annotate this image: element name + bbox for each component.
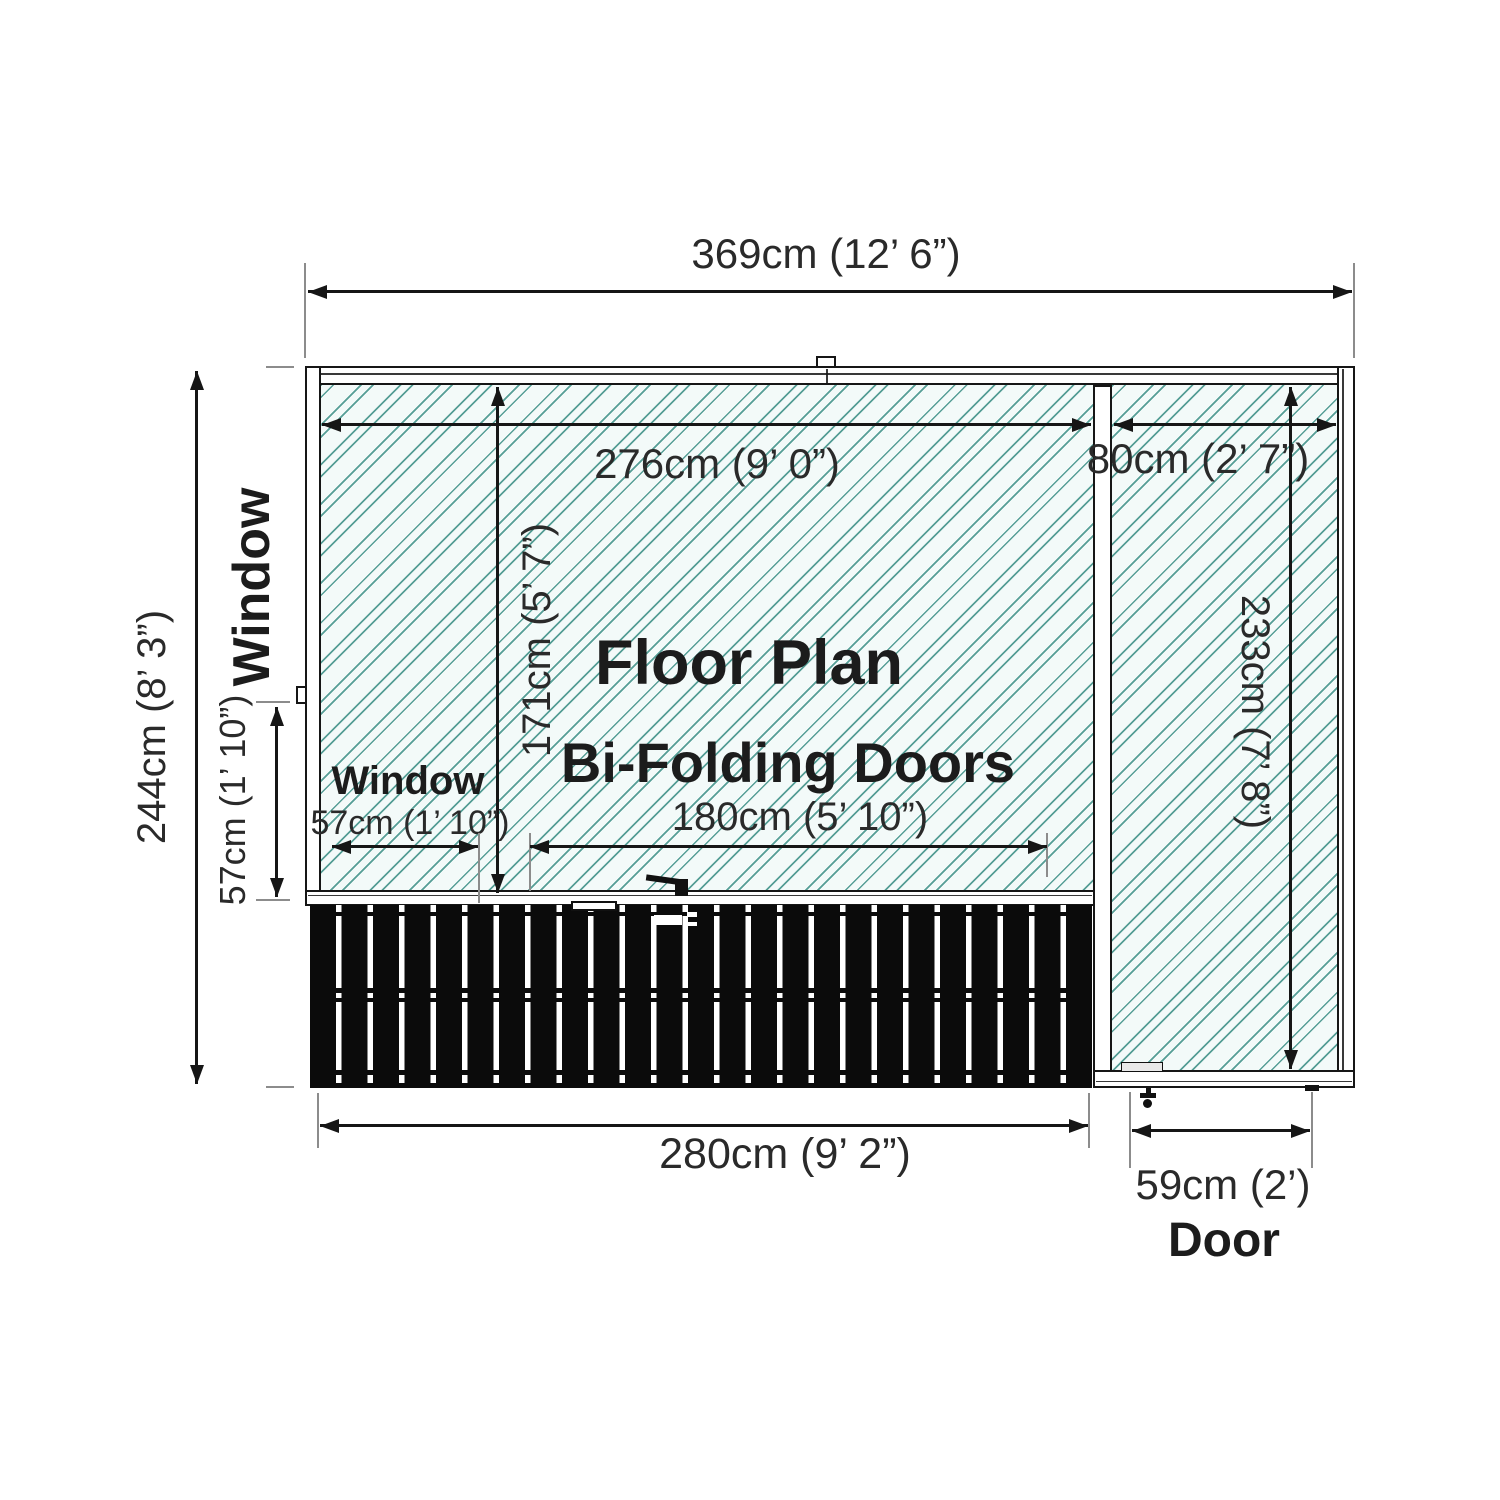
dimension-arrow-main-width xyxy=(322,423,1091,426)
front-wall-inner-line xyxy=(308,895,1092,896)
dimension-overall-depth: 244cm (8’ 3”) xyxy=(132,577,172,877)
panel-joint-line xyxy=(826,369,828,384)
band-handle-mark xyxy=(687,922,697,926)
annex-front-wall-inner-line xyxy=(1096,1081,1352,1082)
annex-room-floor xyxy=(1112,385,1338,1071)
extension-tick xyxy=(266,1086,294,1088)
bifold-doors-joint-row xyxy=(310,1070,1092,1075)
dimension-arrow-overall-depth xyxy=(195,371,198,1084)
dimension-bifold-width: 180cm (5’ 10”) xyxy=(550,796,1050,838)
bifold-doors-joint-row xyxy=(310,988,1092,993)
extension-line xyxy=(1129,1092,1131,1168)
door-hinge-bar xyxy=(1305,1085,1319,1091)
dimension-front-width: 280cm (9’ 2”) xyxy=(535,1132,1035,1176)
dimension-annex-depth: 233cm (7’ 8”) xyxy=(1235,562,1275,862)
extension-tick xyxy=(256,899,290,901)
dimension-arrow-annex-depth xyxy=(1289,387,1292,1069)
dimension-arrow-side-window xyxy=(275,707,278,897)
bifold-doors-bottom-edge xyxy=(310,1083,1092,1088)
band-handle-plate xyxy=(654,915,682,925)
front-wall-main xyxy=(305,890,1095,906)
extension-line xyxy=(478,833,480,903)
dimension-overall-width: 369cm (12’ 6”) xyxy=(576,232,1076,276)
extension-line xyxy=(1088,1093,1090,1148)
dimension-arrow-front-width xyxy=(320,1124,1088,1127)
dimension-main-width: 276cm (9’ 0”) xyxy=(467,442,967,486)
diagram-title: Floor Plan xyxy=(449,630,1049,696)
bifold-doors-band xyxy=(310,905,1092,1088)
front-wall-tab xyxy=(571,901,617,911)
extension-tick xyxy=(256,701,290,703)
top-wall xyxy=(305,366,1355,385)
extension-tick xyxy=(266,366,294,368)
extension-line xyxy=(1353,263,1355,358)
door-label: Door xyxy=(1074,1216,1374,1266)
dimension-arrow-bifold-width xyxy=(530,845,1047,848)
extension-line xyxy=(1311,1092,1313,1168)
annex-door-leaf xyxy=(1121,1062,1163,1072)
dimension-front-window: 57cm (1’ 10”) xyxy=(260,806,560,840)
dimension-side-window: 57cm (1’ 10”) xyxy=(215,650,251,950)
front-window-label: Window xyxy=(258,760,558,802)
extension-line xyxy=(304,263,306,358)
dimension-arrow-annex-width xyxy=(1114,423,1336,426)
dimension-annex-width: 80cm (2’ 7”) xyxy=(1048,437,1348,481)
bifold-doors-joint-row xyxy=(310,998,1092,1002)
door-handle-base xyxy=(675,879,688,896)
diagram-subtitle: Bi-Folding Doors xyxy=(488,734,1088,792)
bifold-doors-joint-row xyxy=(310,912,1092,916)
panel-joint-tab xyxy=(816,356,836,368)
side-window-marker xyxy=(296,686,307,704)
floor-plan-diagram: 369cm (12’ 6”) 276cm (9’ 0”) 80cm (2’ 7”… xyxy=(0,0,1500,1500)
door-hinge-bar xyxy=(1140,1093,1156,1098)
dimension-arrow-door-width xyxy=(1132,1129,1310,1132)
top-wall-inner-line xyxy=(308,373,1352,375)
door-hinge-ball xyxy=(1143,1099,1152,1108)
dimension-arrow-overall-width xyxy=(308,290,1352,293)
extension-line xyxy=(317,1093,319,1148)
divider-wall xyxy=(1093,385,1112,1073)
band-handle-mark xyxy=(687,912,697,917)
dimension-door-width: 59cm (2’) xyxy=(1073,1163,1373,1207)
dimension-arrow-front-window xyxy=(332,845,478,848)
